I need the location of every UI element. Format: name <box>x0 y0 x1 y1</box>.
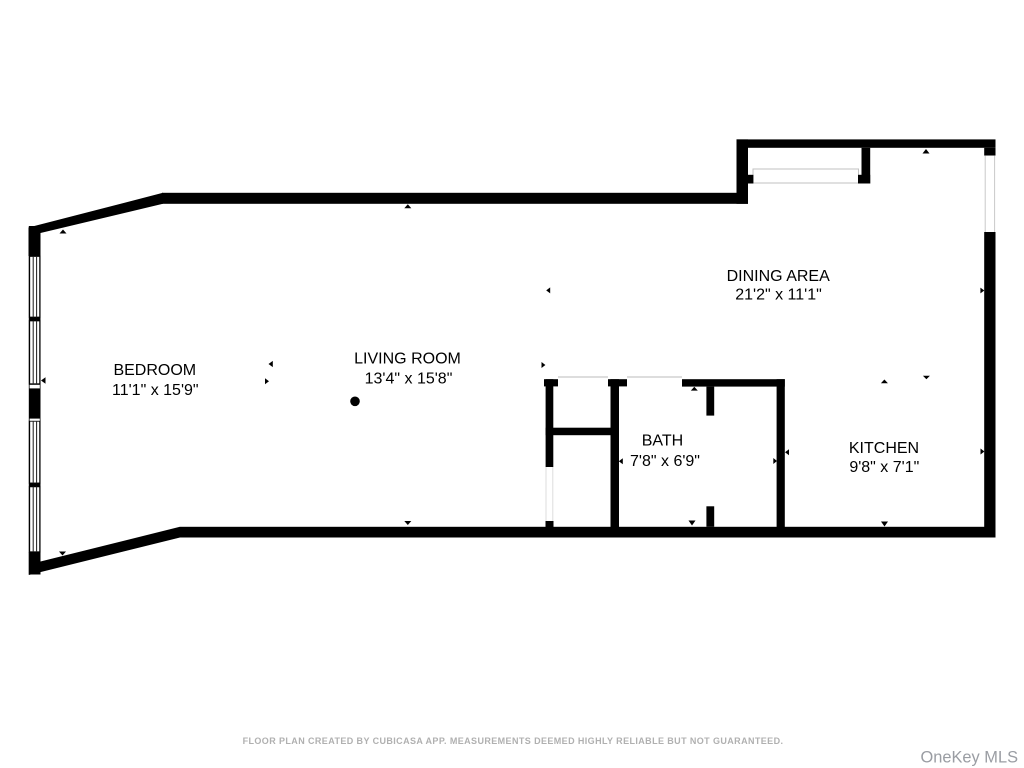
svg-text:11'1" x 15'9": 11'1" x 15'9" <box>112 382 199 399</box>
svg-text:LIVING ROOM: LIVING ROOM <box>354 351 461 368</box>
svg-text:OneKey MLS: OneKey MLS <box>921 749 1019 767</box>
svg-text:KITCHEN: KITCHEN <box>849 440 919 457</box>
svg-text:FLOOR PLAN CREATED BY CUBICASA: FLOOR PLAN CREATED BY CUBICASA APP. MEAS… <box>243 736 784 746</box>
svg-text:9'8" x 7'1": 9'8" x 7'1" <box>849 459 919 476</box>
svg-text:13'4" x 15'8": 13'4" x 15'8" <box>365 371 453 388</box>
svg-text:DINING AREA: DINING AREA <box>727 268 830 285</box>
svg-text:BEDROOM: BEDROOM <box>113 362 196 379</box>
svg-text:BATH: BATH <box>642 432 683 449</box>
svg-text:21'2" x 11'1": 21'2" x 11'1" <box>735 287 822 304</box>
svg-text:7'8" x 6'9": 7'8" x 6'9" <box>630 453 700 470</box>
